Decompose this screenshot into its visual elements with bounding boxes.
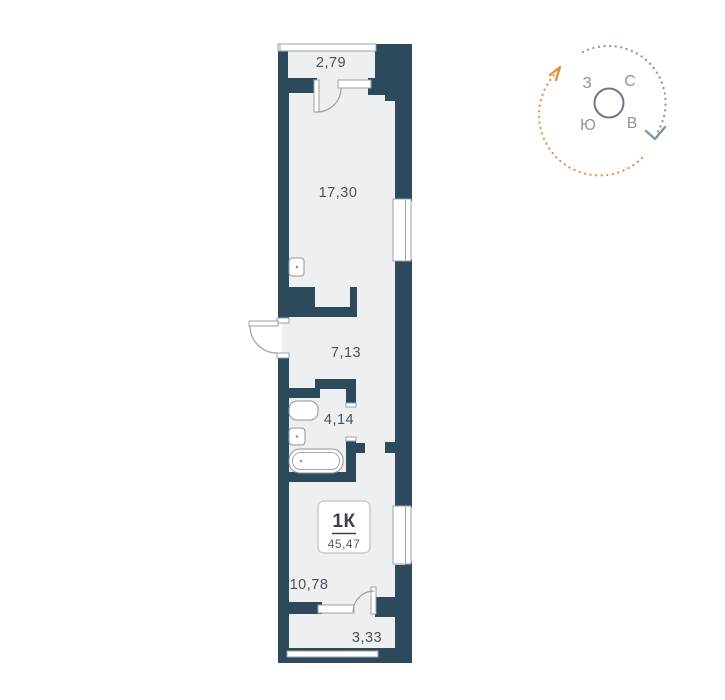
- door-jamb: [346, 437, 356, 441]
- wall-segment: [395, 95, 412, 200]
- compass-letter-west: З: [582, 75, 591, 92]
- toilet: [289, 428, 305, 445]
- window: [318, 605, 354, 613]
- wall-segment: [350, 287, 357, 311]
- apartment-badge: 1К 45,47: [318, 501, 370, 553]
- window: [287, 651, 378, 657]
- wall-segment: [395, 260, 412, 507]
- wall-segment: [278, 47, 288, 78]
- area-label-hallway: 7,13: [331, 345, 361, 361]
- sink: [289, 401, 318, 420]
- wall-segment: [385, 442, 395, 453]
- door-jamb: [277, 318, 289, 323]
- fixture-body: [289, 401, 318, 420]
- wall-segment: [278, 355, 289, 662]
- compass-letter-east: В: [627, 115, 637, 132]
- compass-arrow-orange-icon: [550, 67, 560, 80]
- compass-circle-icon: [595, 89, 624, 118]
- radiator-unit: [289, 258, 304, 276]
- window: [393, 199, 411, 261]
- floor-plan-canvas: 2,79 17,30 7,13 4,14 10,78 3,33 1К 45,47…: [0, 0, 725, 700]
- badge-apartment-type: 1К: [332, 511, 355, 532]
- door-leaf: [314, 80, 319, 112]
- wall-segment: [375, 597, 412, 617]
- wall-segment: [356, 443, 365, 453]
- area-label-balcony-top: 2,79: [316, 55, 346, 71]
- area-label-bathroom: 4,14: [324, 412, 354, 428]
- floorplan: 2,79 17,30 7,13 4,14 10,78 3,33 1К 45,47: [249, 44, 412, 663]
- bathtub: [289, 449, 343, 473]
- wall-segment: [346, 437, 356, 475]
- compass-arrow-blue-icon: [646, 127, 665, 139]
- door-jamb: [277, 353, 289, 358]
- compass-rose: З С Ю В: [539, 46, 666, 176]
- door-jamb: [346, 403, 356, 407]
- compass-letter-south: Ю: [580, 117, 596, 134]
- wall-segment: [375, 44, 412, 80]
- compass-letter-north: С: [624, 73, 635, 90]
- fixture-dot: [296, 435, 299, 438]
- wall-segment: [289, 388, 320, 398]
- window: [338, 80, 371, 88]
- door-swing-arc: [250, 326, 277, 353]
- window: [280, 44, 376, 51]
- wall-segment: [278, 93, 289, 323]
- fixture-dot: [300, 460, 303, 463]
- area-label-balcony-bottom: 3,33: [352, 630, 382, 646]
- fixture-dot: [296, 266, 299, 269]
- area-label-kitchen: 10,78: [290, 577, 329, 593]
- wall-segment: [289, 287, 315, 317]
- floor-plan-page: 2,79 17,30 7,13 4,14 10,78 3,33 1К 45,47…: [0, 0, 725, 700]
- wall-segment: [285, 602, 322, 614]
- badge-total-area: 45,47: [328, 537, 361, 551]
- wall-segment: [278, 78, 317, 93]
- door-leaf: [249, 321, 278, 326]
- area-label-living-room: 17,30: [319, 185, 358, 201]
- window: [393, 506, 411, 564]
